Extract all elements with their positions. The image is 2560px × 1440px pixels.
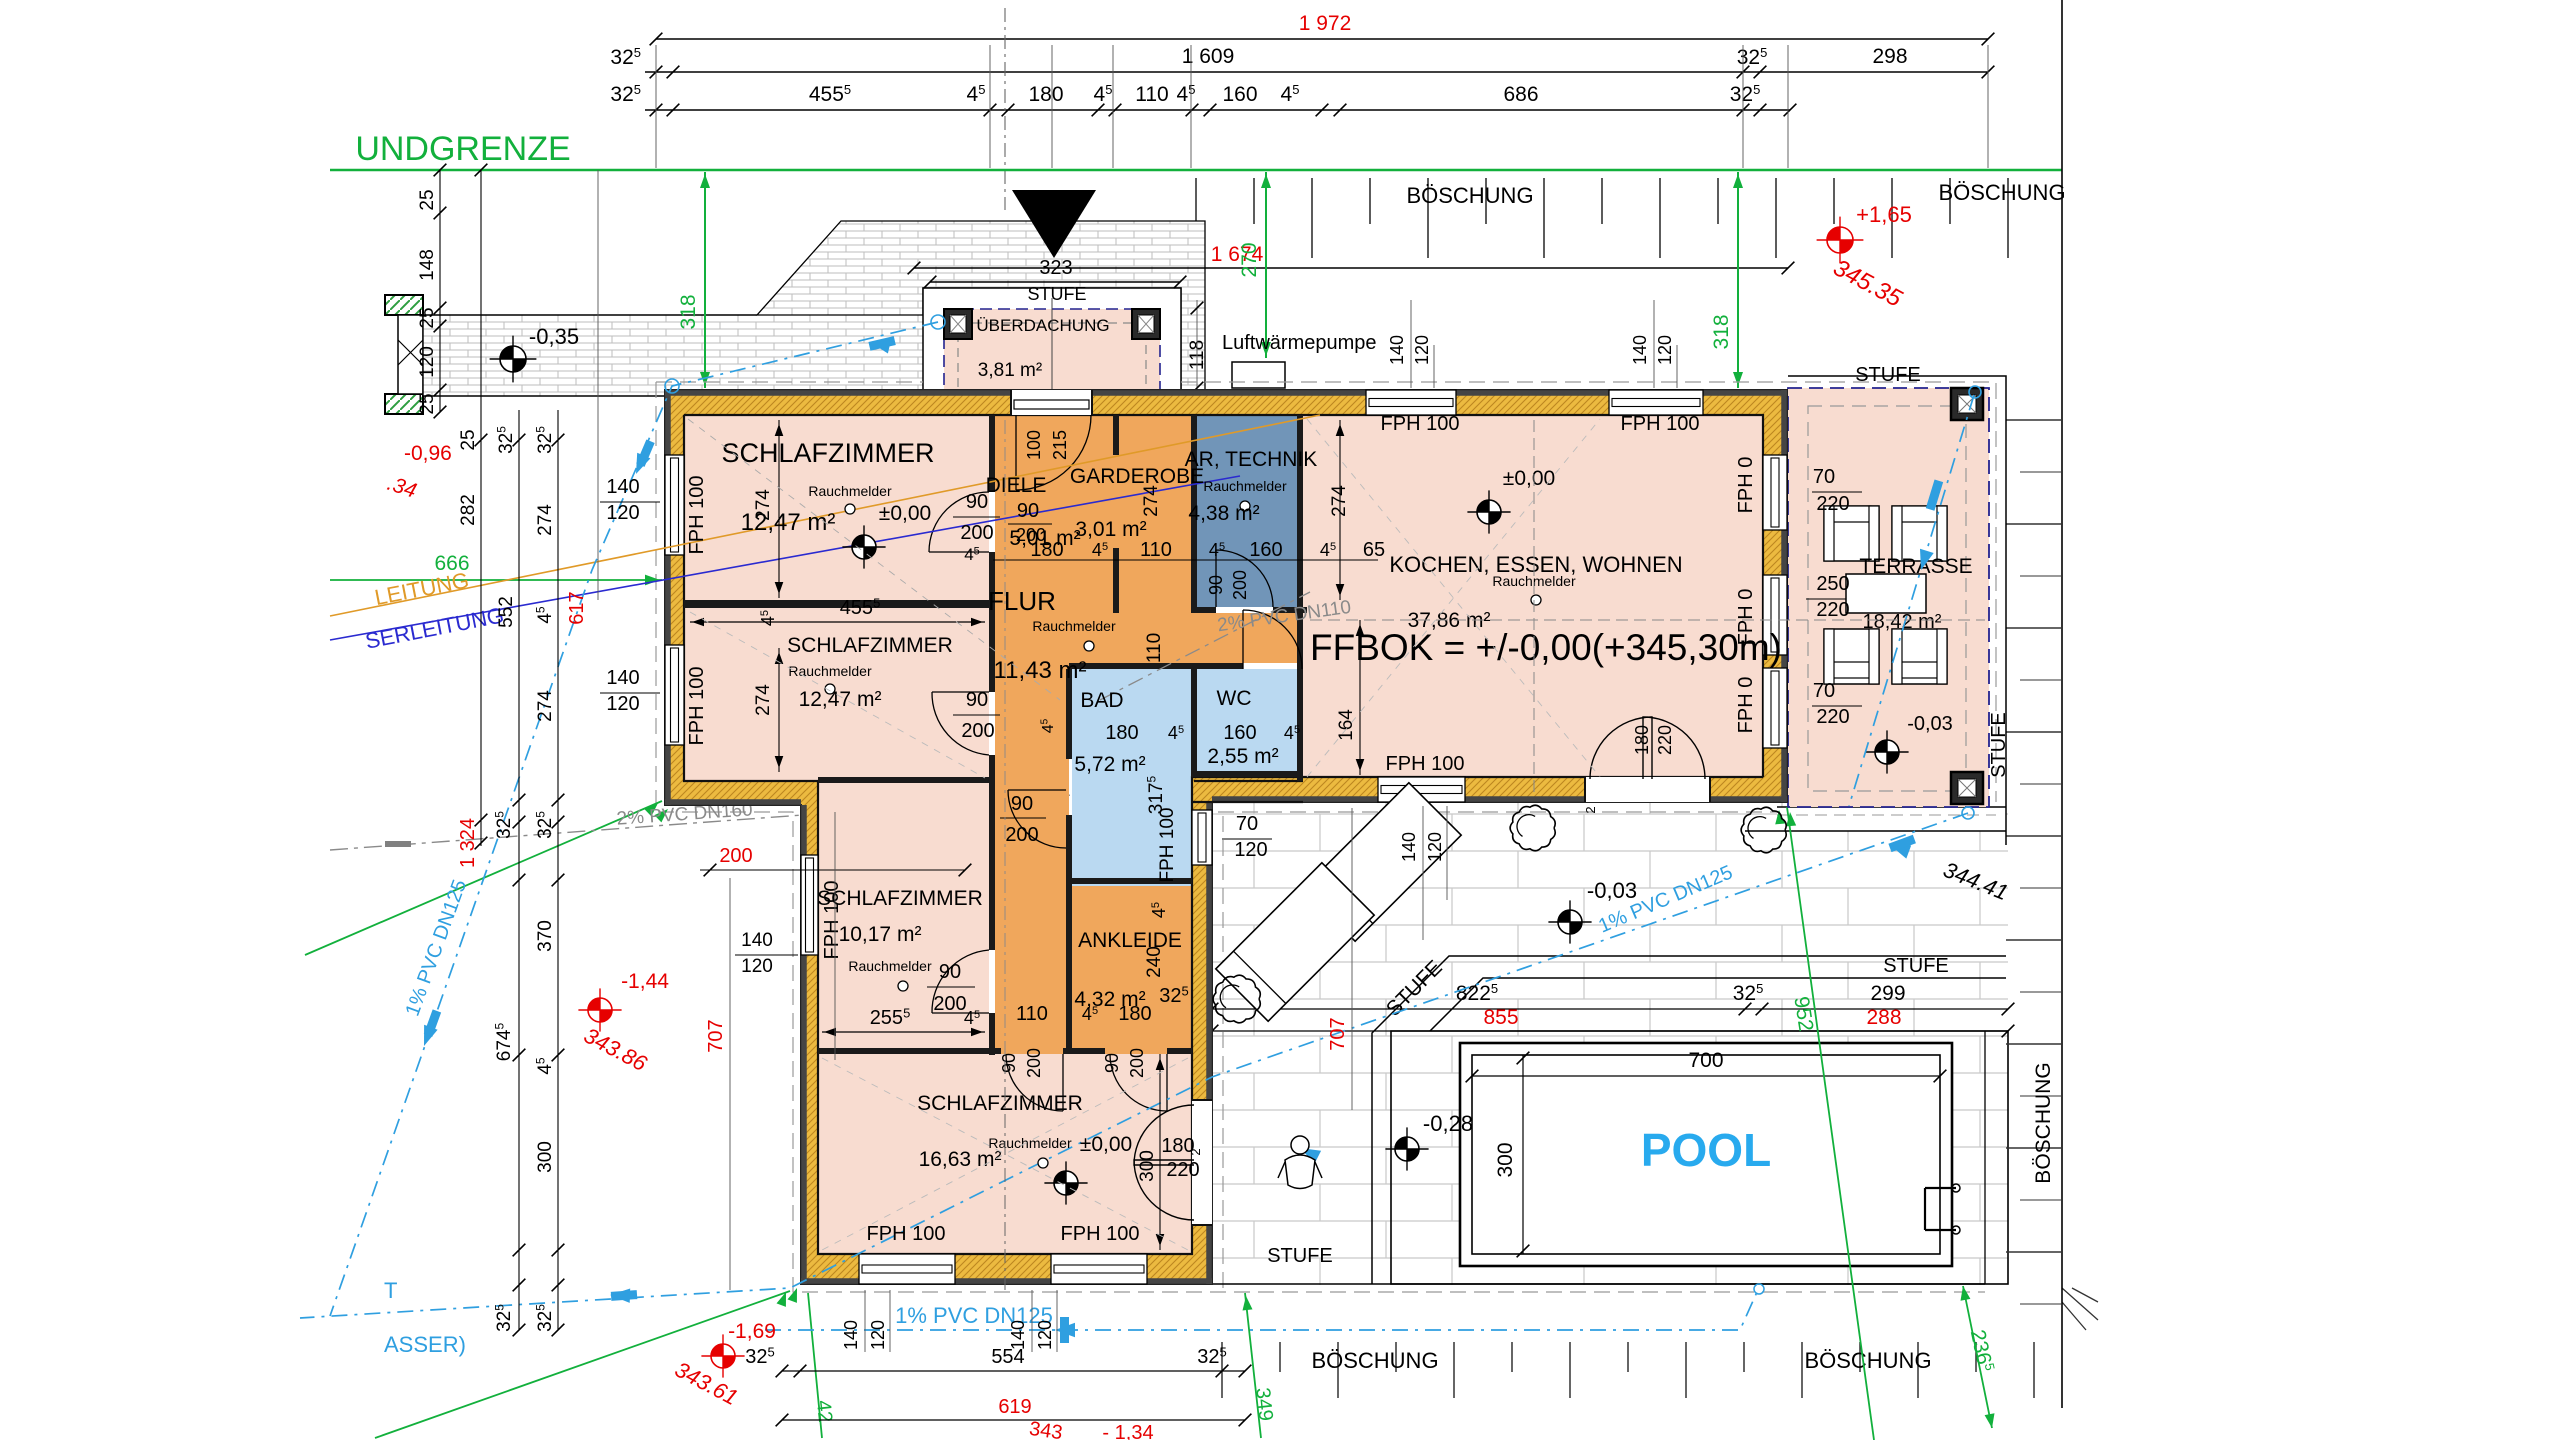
svg-text:12,47 m²: 12,47 m² xyxy=(799,688,882,711)
svg-text:140: 140 xyxy=(841,1320,861,1350)
svg-text:10,17 m²: 10,17 m² xyxy=(839,923,922,946)
svg-text:FPH 100: FPH 100 xyxy=(867,1223,946,1245)
svg-text:70: 70 xyxy=(1236,813,1258,835)
svg-text:855: 855 xyxy=(1483,1006,1518,1029)
svg-text:200: 200 xyxy=(1230,570,1250,600)
svg-text:WC: WC xyxy=(1217,687,1252,710)
svg-text:-0,28: -0,28 xyxy=(1423,1111,1473,1136)
svg-text:-1,69: -1,69 xyxy=(728,1320,776,1343)
svg-text:707: 707 xyxy=(705,1019,727,1052)
svg-text:240: 240 xyxy=(1144,946,1165,978)
svg-text:200: 200 xyxy=(933,993,966,1015)
svg-text:T: T xyxy=(384,1278,397,1303)
svg-text:270: 270 xyxy=(1238,242,1261,277)
svg-text:25: 25 xyxy=(458,429,479,450)
svg-text:318: 318 xyxy=(677,294,700,329)
svg-text:STUFE: STUFE xyxy=(1855,364,1921,386)
svg-text:FPH 100: FPH 100 xyxy=(1621,413,1700,435)
svg-text:110: 110 xyxy=(1140,539,1172,561)
svg-text:Rauchmelder: Rauchmelder xyxy=(1203,478,1287,494)
svg-text:FPH 100: FPH 100 xyxy=(686,667,708,746)
svg-text:±0,00: ±0,00 xyxy=(1503,467,1555,490)
svg-text:120: 120 xyxy=(868,1320,888,1350)
svg-text:343: 343 xyxy=(1028,1418,1064,1440)
svg-text:274: 274 xyxy=(753,489,774,521)
svg-text:619: 619 xyxy=(998,1396,1031,1418)
svg-text:180: 180 xyxy=(1028,83,1063,106)
svg-text:299: 299 xyxy=(1870,982,1905,1005)
svg-text:ASSER): ASSER) xyxy=(384,1332,466,1357)
svg-text:AR, TECHNIK: AR, TECHNIK xyxy=(1185,448,1318,471)
svg-text:±0,00: ±0,00 xyxy=(879,502,931,525)
svg-text:FPH 0: FPH 0 xyxy=(1735,457,1757,514)
svg-text:BÖSCHUNG: BÖSCHUNG xyxy=(2032,1062,2055,1183)
svg-text:110: 110 xyxy=(1135,83,1168,106)
svg-text:120: 120 xyxy=(1035,1320,1055,1350)
svg-text:3,01 m²: 3,01 m² xyxy=(1075,518,1146,541)
svg-text:ANKLEIDE: ANKLEIDE xyxy=(1078,929,1182,952)
svg-text:274: 274 xyxy=(1141,485,1162,517)
svg-text:65: 65 xyxy=(1363,539,1385,561)
svg-text:554: 554 xyxy=(991,1346,1024,1368)
svg-text:ÜBERDACHUNG: ÜBERDACHUNG xyxy=(976,316,1109,335)
svg-text:Luftwärmepumpe: Luftwärmepumpe xyxy=(1222,332,1377,354)
svg-text:220: 220 xyxy=(1816,706,1849,728)
svg-text:300: 300 xyxy=(535,1141,556,1173)
svg-text:370: 370 xyxy=(535,920,556,952)
svg-text:25: 25 xyxy=(417,307,438,328)
svg-text:BÖSCHUNG: BÖSCHUNG xyxy=(1311,1348,1438,1373)
svg-text:274: 274 xyxy=(535,504,556,536)
svg-text:617: 617 xyxy=(566,591,588,624)
svg-text:160: 160 xyxy=(1222,83,1257,106)
svg-text:FLUR: FLUR xyxy=(988,586,1056,616)
svg-text:DIELE: DIELE xyxy=(986,474,1047,497)
svg-text:SCHLAFZIMMER: SCHLAFZIMMER xyxy=(787,634,953,657)
svg-text:140: 140 xyxy=(741,930,773,951)
svg-text:110: 110 xyxy=(1016,1003,1048,1025)
svg-text:120: 120 xyxy=(606,693,639,715)
svg-text:349: 349 xyxy=(1251,1387,1276,1422)
svg-text:11,43 m²: 11,43 m² xyxy=(994,657,1087,684)
svg-text:STUFE: STUFE xyxy=(1027,284,1086,304)
svg-text:200: 200 xyxy=(1024,1048,1044,1078)
svg-text:200: 200 xyxy=(1005,824,1038,846)
svg-text:3,81 m²: 3,81 m² xyxy=(978,360,1042,381)
svg-text:POOL: POOL xyxy=(1641,1124,1771,1176)
svg-text:120: 120 xyxy=(1412,335,1432,365)
svg-text:- 1,34: - 1,34 xyxy=(1102,1422,1153,1440)
svg-text:140: 140 xyxy=(606,667,639,689)
svg-text:686: 686 xyxy=(1503,83,1538,106)
svg-text:BÖSCHUNG: BÖSCHUNG xyxy=(1804,1348,1931,1373)
svg-text:120: 120 xyxy=(1655,335,1675,365)
svg-text:274: 274 xyxy=(535,690,556,722)
svg-text:25: 25 xyxy=(417,189,438,210)
svg-text:SCHLAFZIMMER: SCHLAFZIMMER xyxy=(721,438,934,468)
svg-text:120: 120 xyxy=(417,346,438,378)
svg-text:140: 140 xyxy=(1387,335,1407,365)
svg-text:BÖSCHUNG: BÖSCHUNG xyxy=(1938,180,2065,205)
svg-text:318: 318 xyxy=(1710,314,1733,349)
svg-text:Rauchmelder: Rauchmelder xyxy=(788,663,872,679)
svg-text:200: 200 xyxy=(1127,1048,1147,1078)
svg-text:70: 70 xyxy=(1813,466,1835,488)
svg-text:1 609: 1 609 xyxy=(1182,45,1235,68)
svg-text:2: 2 xyxy=(1583,806,1598,813)
svg-text:BAD: BAD xyxy=(1080,689,1123,712)
svg-text:300: 300 xyxy=(1137,1150,1158,1182)
svg-text:200: 200 xyxy=(719,845,752,867)
svg-text:220: 220 xyxy=(1166,1159,1199,1181)
svg-text:250: 250 xyxy=(1816,573,1849,595)
svg-text:FPH 100: FPH 100 xyxy=(1061,1223,1140,1245)
svg-text:+1,65: +1,65 xyxy=(1856,202,1912,227)
svg-text:707: 707 xyxy=(1327,1017,1349,1050)
svg-text:90: 90 xyxy=(1102,1053,1122,1073)
svg-text:70: 70 xyxy=(1813,680,1835,702)
svg-text:120: 120 xyxy=(1234,839,1267,861)
svg-text:SCHLAFZIMMER: SCHLAFZIMMER xyxy=(917,1092,1083,1115)
svg-text:120: 120 xyxy=(741,956,773,977)
svg-text:148: 148 xyxy=(417,249,438,281)
svg-text:Rauchmelder: Rauchmelder xyxy=(848,958,932,974)
svg-text:-0,03: -0,03 xyxy=(1587,878,1637,903)
svg-text:FPH 100: FPH 100 xyxy=(821,881,843,960)
svg-text:2,55 m²: 2,55 m² xyxy=(1207,745,1278,768)
svg-text:-0,03: -0,03 xyxy=(1907,713,1953,735)
svg-text:120: 120 xyxy=(606,502,639,524)
svg-text:215: 215 xyxy=(1050,430,1070,460)
svg-text:300: 300 xyxy=(1494,1142,1517,1177)
svg-text:±0,00: ±0,00 xyxy=(1080,1133,1132,1156)
svg-text:-0,35: -0,35 xyxy=(529,324,579,349)
svg-text:100: 100 xyxy=(1024,430,1044,460)
svg-text:FPH 100: FPH 100 xyxy=(1157,808,1178,883)
svg-text:1 972: 1 972 xyxy=(1299,12,1352,35)
svg-text:140: 140 xyxy=(1399,832,1419,862)
svg-text:1% PVC DN125: 1% PVC DN125 xyxy=(895,1303,1053,1328)
svg-text:200: 200 xyxy=(961,720,994,742)
svg-text:25: 25 xyxy=(417,393,438,414)
svg-text:STUFE: STUFE xyxy=(1267,1245,1333,1267)
svg-text:Rauchmelder: Rauchmelder xyxy=(1032,618,1116,634)
svg-text:TERRASSE: TERRASSE xyxy=(1859,555,1972,578)
svg-text:FPH 100: FPH 100 xyxy=(686,476,708,555)
svg-text:FPH 0: FPH 0 xyxy=(1735,677,1757,734)
svg-text:140: 140 xyxy=(1630,335,1650,365)
svg-text:2: 2 xyxy=(1188,1148,1203,1155)
svg-text:552: 552 xyxy=(496,596,517,628)
svg-text:90: 90 xyxy=(939,961,961,983)
svg-text:FPH 100: FPH 100 xyxy=(1381,413,1460,435)
svg-text:140: 140 xyxy=(606,476,639,498)
svg-text:282: 282 xyxy=(458,494,479,526)
svg-text:UNDGRENZE: UNDGRENZE xyxy=(355,130,570,168)
svg-text:220: 220 xyxy=(1816,493,1849,515)
svg-text:FPH 100: FPH 100 xyxy=(1386,753,1465,775)
svg-text:200: 200 xyxy=(960,522,993,544)
svg-text:16,63 m²: 16,63 m² xyxy=(919,1148,1002,1171)
svg-text:-1,44: -1,44 xyxy=(621,970,669,993)
svg-text:90: 90 xyxy=(1206,575,1226,595)
svg-text:1 324: 1 324 xyxy=(457,818,479,868)
svg-text:274: 274 xyxy=(753,684,774,716)
svg-text:STUFE: STUFE xyxy=(1883,955,1949,977)
svg-text:180: 180 xyxy=(1030,539,1063,561)
svg-text:700: 700 xyxy=(1688,1049,1723,1072)
svg-text:180: 180 xyxy=(1632,725,1652,755)
svg-text:90: 90 xyxy=(1011,793,1033,815)
svg-text:FFBOK = +/-0,00(+345,30m): FFBOK = +/-0,00(+345,30m) xyxy=(1310,627,1782,668)
svg-text:Rauchmelder: Rauchmelder xyxy=(808,483,892,499)
svg-text:120: 120 xyxy=(1425,832,1445,862)
svg-text:-0,96: -0,96 xyxy=(404,442,452,465)
svg-text:STUFE: STUFE xyxy=(1988,712,2010,778)
svg-text:FPH 0: FPH 0 xyxy=(1735,589,1757,646)
svg-text:180: 180 xyxy=(1105,722,1138,744)
svg-text:288: 288 xyxy=(1866,1006,1901,1029)
svg-text:220: 220 xyxy=(1655,725,1675,755)
svg-text:160: 160 xyxy=(1223,722,1256,744)
svg-text:90: 90 xyxy=(966,689,988,711)
svg-text:4,38 m²: 4,38 m² xyxy=(1188,502,1259,525)
svg-text:5,72 m²: 5,72 m² xyxy=(1074,753,1145,776)
svg-text:160: 160 xyxy=(1249,539,1282,561)
svg-text:298: 298 xyxy=(1872,45,1907,68)
svg-text:90: 90 xyxy=(999,1053,1019,1073)
svg-text:220: 220 xyxy=(1816,599,1849,621)
svg-text:90: 90 xyxy=(1017,500,1039,522)
svg-text:118: 118 xyxy=(1187,340,1208,370)
svg-text:180: 180 xyxy=(1118,1003,1151,1025)
svg-text:110: 110 xyxy=(1144,633,1165,663)
svg-text:BÖSCHUNG: BÖSCHUNG xyxy=(1406,183,1533,208)
svg-text:164: 164 xyxy=(1336,709,1357,741)
